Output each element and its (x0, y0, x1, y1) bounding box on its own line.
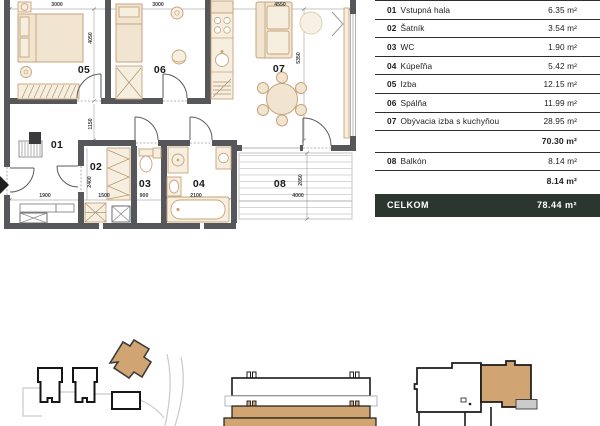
building-elevation-thumbnail (220, 360, 392, 426)
room-label-04: 04 (193, 178, 205, 190)
room-area: 1.90 m² (548, 42, 577, 52)
room-name: Obývacia izba s kuchyňou (400, 116, 499, 126)
bed-single-icon (116, 4, 142, 62)
rug-icon (300, 12, 322, 34)
room-name: Kúpeľňa (400, 61, 432, 71)
room-number: 08 (387, 156, 396, 166)
balcony-deck (239, 153, 352, 219)
shaft-icon (112, 206, 130, 222)
room-area: 11.99 m² (544, 98, 577, 108)
interior-subtotal-row: 70.30 m² (375, 131, 600, 152)
floor-plan: 01 02 03 04 05 06 07 08 3000 3000 4550 4… (0, 0, 370, 235)
sideboard-icon (20, 213, 47, 223)
room-name: Spálňa (400, 98, 426, 108)
nightstand-icon (18, 2, 31, 12)
highlighted-building (110, 340, 151, 378)
area-legend-table: 01 Vstupná hala 6.35 m² 02 Šatník 3.54 m… (375, 0, 600, 217)
svg-text:4000: 4000 (292, 193, 304, 199)
room-number: 02 (387, 23, 396, 33)
room-label-08: 08 (274, 178, 286, 190)
room-number: 03 (387, 42, 396, 52)
svg-text:3000: 3000 (51, 2, 63, 8)
svg-text:4550: 4550 (274, 2, 286, 8)
room-number: 05 (387, 79, 396, 89)
dining-table-icon (258, 72, 307, 126)
legend-row: 06 Spálňa 11.99 m² (375, 94, 600, 113)
svg-text:5350: 5350 (296, 52, 302, 64)
total-area: 78.44 m² (537, 200, 577, 210)
svg-text:900: 900 (140, 193, 149, 199)
shaft-icon (85, 203, 106, 222)
legend-row: 04 Kúpeľňa 5.42 m² (375, 57, 600, 76)
bed-double-icon (18, 14, 83, 62)
top-floor (232, 372, 370, 396)
shoe-cabinet-icon (19, 132, 42, 157)
svg-text:1500: 1500 (98, 193, 110, 199)
room-label-07: 07 (273, 63, 285, 75)
floor-lamp-icon (332, 12, 343, 36)
closet-rod-icon (107, 148, 130, 200)
room-name: WC (400, 42, 414, 52)
bath-sink-icon (167, 177, 181, 196)
room-name: Vstupná hala (400, 5, 450, 15)
subtotal-area: 8.14 m² (547, 176, 577, 186)
room-area: 8.14 m² (548, 156, 577, 166)
total-bar: CELKOM 78.44 m² (375, 194, 600, 217)
legend-row: 02 Šatník 3.54 m² (375, 20, 600, 39)
room-number: 04 (387, 61, 396, 71)
shower-icon (168, 147, 188, 173)
room-area: 28.95 m² (543, 116, 577, 126)
svg-text:2100: 2100 (190, 193, 202, 199)
svg-text:1150: 1150 (88, 118, 94, 129)
entrance-arrow-icon (0, 176, 9, 194)
toilet-icon (139, 149, 153, 172)
room-label-06: 06 (154, 64, 166, 76)
legend-row: 08 Balkón 8.14 m² (375, 153, 600, 172)
site-plan-thumbnail (20, 330, 198, 426)
svg-text:4050: 4050 (88, 32, 94, 44)
curtain-icon (344, 8, 349, 138)
svg-text:1900: 1900 (39, 193, 51, 199)
room-label-01: 01 (51, 139, 63, 151)
svg-text:2050: 2050 (298, 174, 304, 186)
plant-icon (21, 67, 32, 78)
room-name: Izba (400, 79, 416, 89)
room-number: 06 (387, 98, 396, 108)
wardrobe-icon (116, 66, 142, 99)
room-name: Balkón (400, 156, 426, 166)
room-area: 3.54 m² (548, 23, 577, 33)
room-area: 5.42 m² (548, 61, 577, 71)
room-label-05: 05 (78, 64, 90, 76)
legend-row: 07 Obývacia izba s kuchyňou 28.95 m² (375, 113, 600, 132)
washing-machine-icon (216, 147, 231, 169)
svg-text:3000: 3000 (152, 2, 164, 8)
room-area: 12.15 m² (543, 79, 577, 89)
plant-icon (171, 7, 183, 19)
floorplan-sheet: 01 02 03 04 05 06 07 08 3000 3000 4550 4… (0, 0, 600, 426)
total-label: CELKOM (387, 200, 429, 210)
floor-position-thumbnail (403, 348, 563, 426)
subtotal-area: 70.30 m² (542, 136, 577, 146)
room-label-02: 02 (90, 161, 102, 173)
room-number: 07 (387, 116, 396, 126)
bench-icon (20, 204, 74, 212)
legend-row: 01 Vstupná hala 6.35 m² (375, 1, 600, 20)
bathtub-icon (167, 197, 229, 222)
room-name: Šatník (400, 23, 424, 33)
svg-text:2400: 2400 (87, 176, 93, 188)
balcony-subtotal-row: 8.14 m² (375, 171, 600, 191)
room-area: 6.35 m² (548, 5, 577, 15)
legend-row: 03 WC 1.90 m² (375, 38, 600, 57)
room-number: 01 (387, 5, 396, 15)
sofa-icon (256, 2, 292, 58)
legend-row: 05 Izba 12.15 m² (375, 75, 600, 94)
wardrobe-icon (18, 84, 79, 99)
wc-sink-icon (153, 148, 161, 158)
room-label-03: 03 (139, 178, 151, 190)
unit-balcony (516, 400, 537, 410)
armchair-icon (172, 50, 186, 64)
kitchen-counter (211, 1, 233, 99)
